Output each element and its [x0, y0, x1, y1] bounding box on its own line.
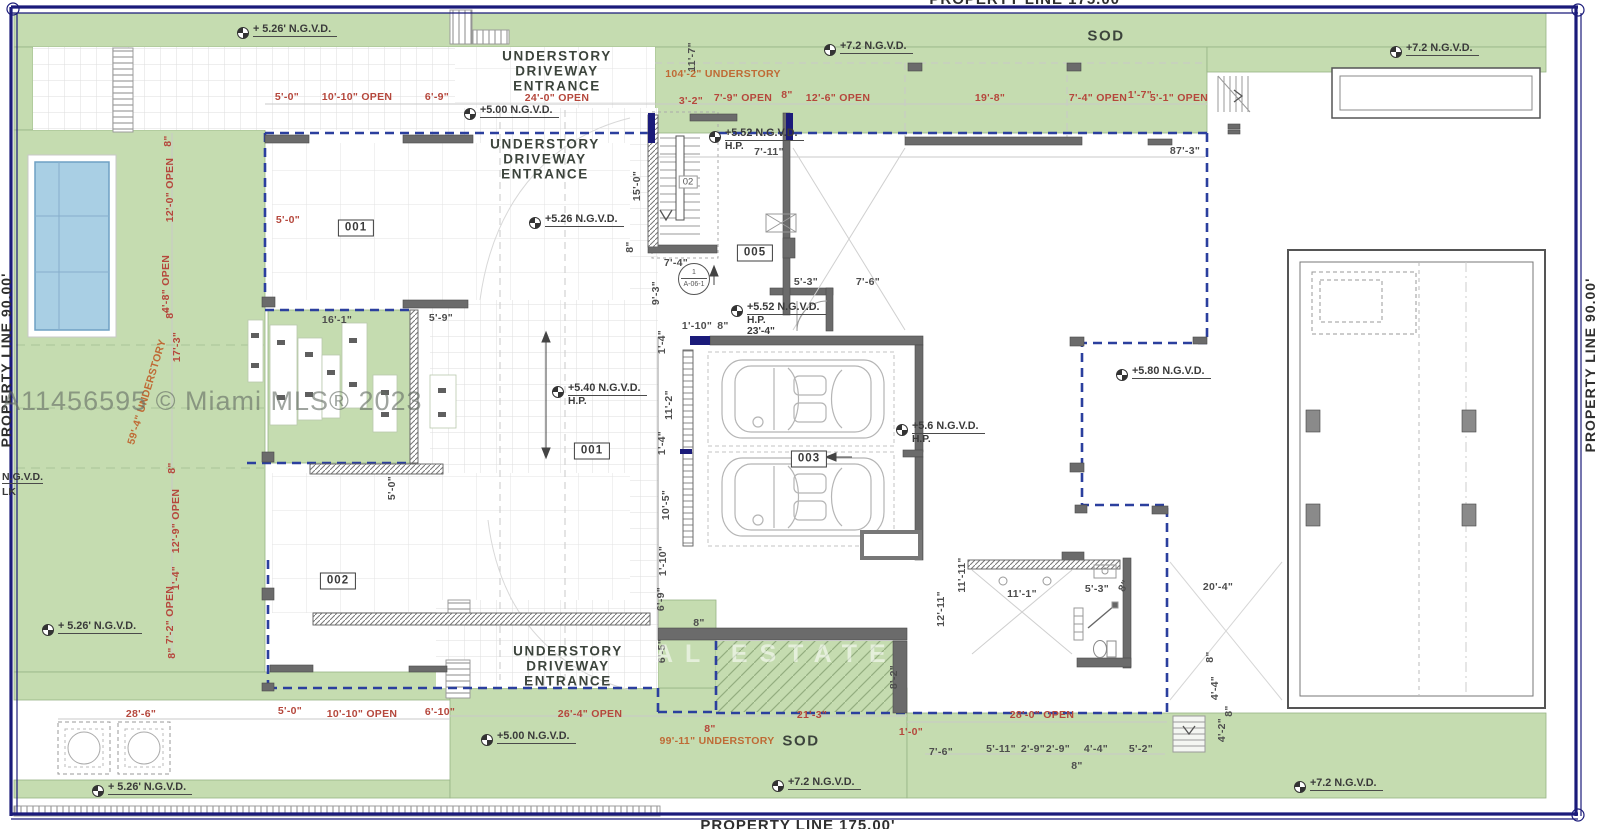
dimension-label: 20'-4": [1203, 581, 1233, 593]
elevation-value: +5.40 N.G.V.D.: [568, 382, 647, 396]
dimension-label: 12'-0" OPEN: [164, 158, 176, 222]
elevation-value: +5.6 N.G.V.D.: [912, 420, 985, 434]
benchmark-icon: [895, 423, 909, 437]
dimension-label: 6'-9": [655, 587, 667, 611]
elevation-marker: +5.40 N.G.V.D.H.P.: [551, 385, 565, 399]
dimension-label: 8": [162, 135, 174, 146]
dimension-label: 11'-11": [956, 557, 968, 592]
room-tag: 002: [320, 573, 356, 590]
benchmark-icon: [708, 130, 722, 144]
elevation-value: +5.00 N.G.V.D.: [480, 104, 559, 118]
dimension-label: 1'-10": [657, 546, 669, 576]
edge-text: N.G.V.D.: [2, 471, 43, 484]
dimension-label: 8": [164, 307, 176, 318]
elevation-value: +5.52 N.G.V.D.: [725, 127, 804, 141]
elevation-value: +5.80 N.G.V.D.: [1132, 365, 1211, 379]
benchmark-icon: [528, 216, 542, 230]
dimension-label: 3'-2": [679, 95, 703, 107]
dimension-label: 5'-11": [986, 743, 1016, 755]
dimension-label: 12'-6" OPEN: [806, 92, 870, 104]
benchmark-icon: [551, 385, 565, 399]
property-line-label-bottom: PROPERTY LINE 175.00': [658, 817, 938, 829]
dimension-label: 15'-0": [631, 171, 643, 201]
dimension-label: 7'-9" OPEN: [714, 92, 772, 104]
elevation-value: + 5.26' N.G.V.D.: [253, 23, 337, 37]
benchmark-icon: [91, 784, 105, 798]
benchmark-icon: [771, 779, 785, 793]
benchmark-icon: [1115, 368, 1129, 382]
site-plan-canvas: 5'-0"10'-10" OPEN6'-9"24'-0" OPEN3'-2"7'…: [0, 0, 1600, 829]
elevation-subtext: 23'-4": [747, 326, 775, 337]
elevation-marker: +5.00 N.G.V.D.: [480, 733, 494, 747]
elevation-marker: +7.2 N.G.V.D.: [771, 779, 785, 793]
dimension-label: 28'-0" OPEN: [1010, 709, 1074, 721]
dimension-label: 28'-6": [126, 708, 156, 720]
dimension-label: 5'-0": [275, 91, 299, 103]
dimension-label: 5'-3": [1085, 583, 1109, 595]
elevation-value: + 5.26' N.G.V.D.: [108, 781, 192, 795]
elevation-marker: +7.2 N.G.V.D.: [1293, 780, 1307, 794]
elevation-marker: + 5.26' N.G.V.D.: [41, 623, 55, 637]
elevation-marker: +5.00 N.G.V.D.: [463, 107, 477, 121]
dimension-label: 5'-2": [1129, 743, 1153, 755]
dimension-label: 7'-4" OPEN: [1069, 92, 1127, 104]
stair-number-tag: 02: [679, 176, 698, 189]
dimension-label: 4'-4": [1209, 676, 1221, 700]
dimension-label: 2'-9": [1021, 743, 1045, 755]
elevation-marker: +5.52 N.G.V.D.H.P.23'-4": [730, 304, 744, 318]
elevation-value: +7.2 N.G.V.D.: [1310, 777, 1383, 791]
dimension-label: 5'-0": [386, 476, 398, 500]
benchmark-icon: [463, 107, 477, 121]
benchmark-icon: [1389, 45, 1403, 59]
elevation-marker: + 5.26' N.G.V.D.: [91, 784, 105, 798]
dimension-label: 1'-4": [656, 330, 668, 354]
property-line-label-left: PROPERTY LINE 90.00': [0, 273, 14, 448]
dimension-label: 26'-4" OPEN: [558, 708, 622, 720]
zone-label: UNDERSTORY DRIVEWAY ENTRANCE: [490, 137, 600, 182]
dimension-label: 8": [704, 723, 715, 735]
dimension-label: 6'-10": [425, 706, 455, 718]
room-tag: 001: [338, 220, 374, 237]
dimension-label: 8": [693, 617, 704, 629]
detail-number: 1: [679, 269, 709, 276]
mls-watermark: A11456595 © Miami MLS® 2023: [2, 386, 423, 417]
elevation-marker: +7.2 N.G.V.D.: [1389, 45, 1403, 59]
dimension-label: 1'-7": [1128, 89, 1152, 101]
dimension-label: 12'-11": [935, 591, 947, 627]
dimension-label: 5'-3": [794, 276, 818, 288]
dimension-label: 21'-3": [797, 709, 827, 721]
zone-label: UNDERSTORY DRIVEWAY ENTRANCE: [502, 49, 612, 94]
dimension-label: 16'-1": [322, 314, 352, 326]
property-line-label-top: PROPERTY LINE 175.00': [887, 0, 1167, 8]
edge-text: LK: [2, 486, 16, 498]
dimension-label: 5'-1" OPEN: [1150, 92, 1208, 104]
dimension-label: 1'-4": [656, 431, 668, 455]
dimension-label: 9'-3": [650, 281, 662, 305]
benchmark-icon: [1293, 780, 1307, 794]
dimension-label: 10'-5": [660, 490, 672, 520]
elevation-subtext: H.P.: [568, 396, 587, 407]
dimension-label: 1'-0": [899, 726, 923, 738]
elevation-subtext: H.P.: [912, 434, 931, 445]
detail-sheet: A-06-1: [683, 281, 704, 288]
dimension-label: 87'-3": [1170, 145, 1200, 157]
dimension-label: 8": [1071, 760, 1082, 772]
dimension-label: 7'-2" OPEN: [164, 586, 176, 644]
elevation-marker: +5.26 N.G.V.D.: [528, 216, 542, 230]
dimension-label: 5'-9": [429, 312, 453, 324]
elevation-value: +7.2 N.G.V.D.: [840, 40, 913, 54]
dimension-label: 7'-11": [754, 146, 784, 158]
detail-reference-tag: 1A-06-1: [678, 263, 710, 295]
elevation-subtext: H.P.: [747, 315, 766, 326]
benchmark-icon: [480, 733, 494, 747]
dimension-label: 17'-3": [171, 332, 183, 362]
dimension-label: 7'-6": [856, 276, 880, 288]
dimension-label: 11'-7": [686, 42, 698, 72]
dimension-label: 8": [166, 462, 178, 473]
dimension-label: 11'-2": [663, 390, 675, 420]
dimension-label: 5'-0": [278, 705, 302, 717]
elevation-marker: +5.80 N.G.V.D.: [1115, 368, 1129, 382]
dimension-label: 7'-6": [929, 746, 953, 758]
dimension-label: 19'-8": [975, 92, 1005, 104]
zone-label: SOD: [782, 734, 819, 749]
dimension-label: 8": [1116, 578, 1132, 594]
dimension-label: 8": [624, 241, 636, 252]
benchmark-icon: [823, 43, 837, 57]
elevation-subtext: H.P.: [725, 141, 744, 152]
elevation-value: +7.2 N.G.V.D.: [788, 776, 861, 790]
dimension-label: 12'-9" OPEN: [170, 489, 182, 553]
zone-label: SOD: [1087, 29, 1124, 44]
dimension-label: 8": [781, 89, 792, 101]
benchmark-icon: [236, 26, 250, 40]
dimension-label: 24'-0" OPEN: [525, 92, 589, 104]
elevation-marker: +7.2 N.G.V.D.: [823, 43, 837, 57]
zone-label: UNDERSTORY DRIVEWAY ENTRANCE: [513, 644, 623, 689]
dimension-label: 10'-10" OPEN: [322, 91, 393, 103]
ghost-watermark: AL ESTATE: [655, 640, 898, 669]
dimension-label: 1'-10": [682, 320, 712, 332]
benchmark-icon: [41, 623, 55, 637]
dimension-label: 10'-10" OPEN: [327, 708, 398, 720]
elevation-value: +7.2 N.G.V.D.: [1406, 42, 1479, 56]
dimension-label: 6'-9": [425, 91, 449, 103]
dimension-label: 99'-11" UNDERSTORY: [660, 735, 775, 747]
room-tag: 005: [737, 245, 773, 262]
dimension-label: 2'-9": [1046, 743, 1070, 755]
dimension-label: 8": [717, 320, 728, 332]
elevation-value: +5.00 N.G.V.D.: [497, 730, 576, 744]
dimension-label: 104'-2" UNDERSTORY: [665, 68, 781, 80]
dimension-label: 5'-0": [276, 214, 300, 226]
elevation-marker: +5.6 N.G.V.D.H.P.: [895, 423, 909, 437]
elevation-value: + 5.26' N.G.V.D.: [58, 620, 142, 634]
elevation-marker: + 5.26' N.G.V.D.: [236, 26, 250, 40]
dimension-label: 8": [1204, 651, 1216, 662]
property-line-label-right: PROPERTY LINE 90.00': [1582, 278, 1598, 453]
dimension-label: 8": [1223, 705, 1235, 716]
dimension-label: 4'-8" OPEN: [160, 255, 172, 313]
dimension-label: 8": [166, 647, 178, 658]
dimension-label: 4'-4": [1084, 743, 1108, 755]
room-tag: 001: [574, 443, 610, 460]
dimension-label: 11'-1": [1007, 588, 1037, 600]
elevation-marker: +5.52 N.G.V.D.H.P.: [708, 130, 722, 144]
elevation-value: +5.26 N.G.V.D.: [545, 213, 624, 227]
elevation-value: +5.52 N.G.V.D.: [747, 301, 826, 315]
dimension-label: 4'-2": [1216, 718, 1228, 742]
room-tag: 003: [791, 451, 827, 468]
benchmark-icon: [730, 304, 744, 318]
